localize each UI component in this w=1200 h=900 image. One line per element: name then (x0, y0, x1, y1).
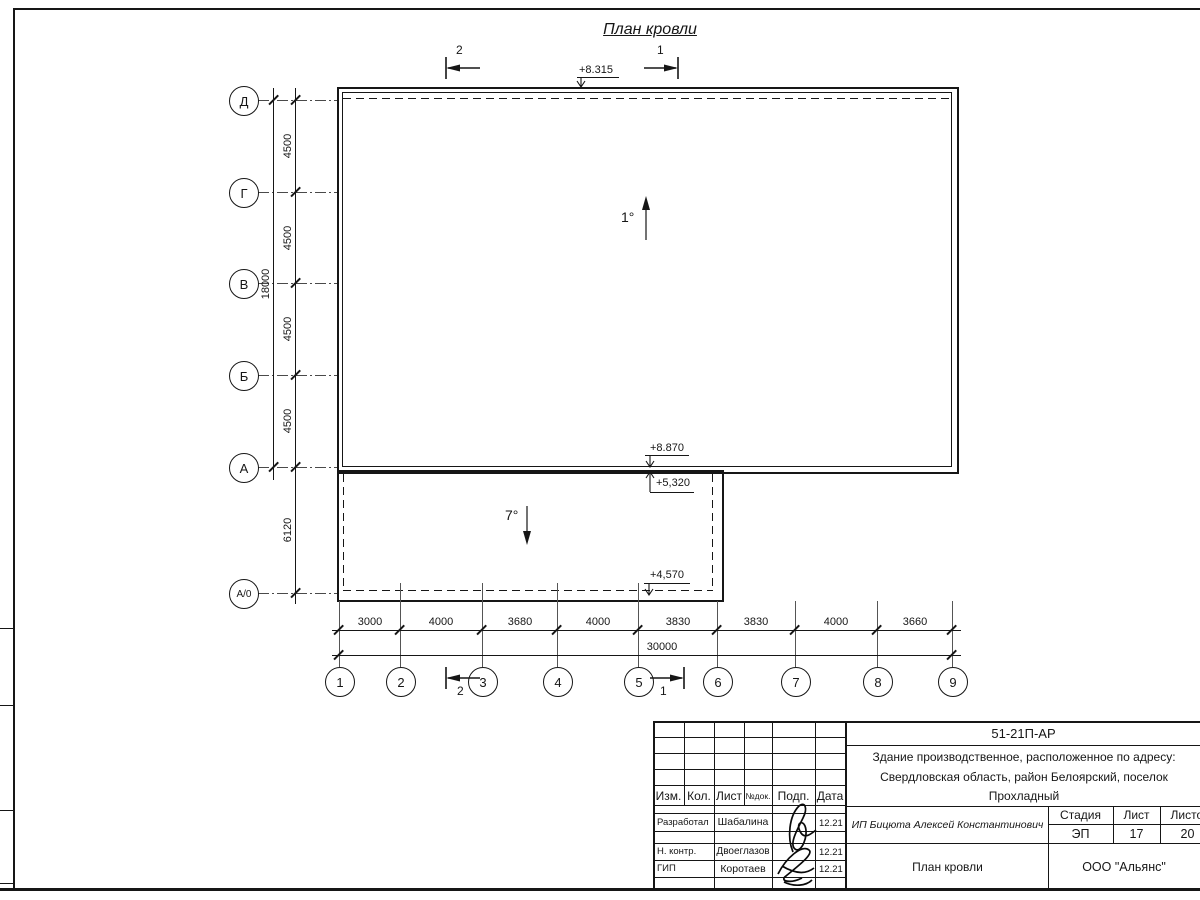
elevation-arrow-up-icon (645, 470, 655, 493)
slope-down-arrow-icon (521, 504, 533, 546)
frame-top (13, 8, 1200, 10)
axis-line-b (258, 375, 337, 376)
roof-main-eaves-dashed (343, 98, 949, 99)
titleblock-sheet-value: 17 (1113, 824, 1160, 843)
dim-line-cols-total (332, 655, 961, 656)
section-arrow-left-top (438, 55, 482, 81)
titleblock-sheets-label: Листов (1160, 806, 1200, 824)
axis-row-label: А (240, 461, 249, 476)
col-ext-line (339, 601, 340, 667)
dim-row-annex: 6120 (282, 518, 294, 542)
dim-row-span-3: 4500 (282, 317, 294, 341)
axis-row-3: В (229, 269, 259, 299)
titleblock-date-3: 12.21 (819, 862, 843, 876)
titleblock-header-ndok: №док. (744, 786, 772, 805)
dim-row-span-4: 4500 (282, 409, 294, 433)
axis-col-6: 6 (703, 667, 733, 697)
titleblock-line (653, 753, 845, 754)
col-ext-line (952, 601, 953, 667)
page-title: План кровли (603, 21, 697, 39)
dim-col-span-1: 3000 (358, 616, 382, 628)
dim-line-rows-total (273, 88, 274, 480)
axis-col-1: 1 (325, 667, 355, 697)
axis-col-label: 9 (949, 675, 956, 690)
roof-main-inner-line (342, 92, 952, 467)
frame-left (13, 8, 15, 890)
elevation-arrow-down-icon (645, 455, 655, 468)
dim-col-span-5: 3830 (666, 616, 690, 628)
dim-col-span-7: 4000 (824, 616, 848, 628)
axis-col-label: 6 (714, 675, 721, 690)
axis-row-label: Б (240, 369, 249, 384)
titleblock-doc-code: 51-21П-АР (847, 721, 1200, 745)
slope-annex-label: 7° (505, 507, 518, 523)
dim-col-span-8: 3660 (903, 616, 927, 628)
slope-main-label: 1° (621, 209, 634, 225)
axis-col-7: 7 (781, 667, 811, 697)
titleblock-date-2: 12.21 (819, 845, 843, 859)
axis-row-2: Г (229, 178, 259, 208)
titleblock-name-1: Шабалина (714, 813, 772, 831)
section-arrow-right-top (642, 55, 686, 81)
dim-line-cols (332, 630, 961, 631)
elevation-arrow-down-icon (644, 583, 654, 596)
titleblock-header-list: Лист (714, 786, 744, 805)
titleblock-header-izm: Изм. (653, 786, 684, 805)
axis-line-g (258, 192, 337, 193)
elevation-ridge-top: +8.315 (579, 64, 613, 76)
titleblock-line (653, 737, 845, 738)
elevation-annex-top: +5,320 (656, 477, 690, 489)
dim-col-span-3: 3680 (508, 616, 532, 628)
annex-dashed-left (343, 474, 344, 591)
elevation-underline (650, 492, 694, 493)
dim-col-span-6: 3830 (744, 616, 768, 628)
margin-divider (0, 810, 13, 811)
axis-row-6: А/0 (229, 579, 259, 609)
titleblock-header-data: Дата (815, 786, 845, 805)
dim-col-span-2: 4000 (429, 616, 453, 628)
axis-col-label: 7 (792, 675, 799, 690)
axis-col-label: 5 (635, 675, 642, 690)
titleblock-line (847, 745, 1200, 746)
col-ext-line (795, 601, 796, 667)
titleblock-object-line: Здание производственное, расположенное п… (852, 748, 1196, 768)
axis-row-label: В (240, 277, 249, 292)
axis-row-5: А (229, 453, 259, 483)
dim-row-span-1: 4500 (282, 134, 294, 158)
titleblock-date-1: 12.21 (819, 815, 843, 831)
elevation-annex-edge: +4,570 (650, 569, 684, 581)
axis-col-label: 4 (554, 675, 561, 690)
titleblock-sheet-name: План кровли (847, 843, 1048, 890)
section-label: 1 (657, 43, 664, 57)
titleblock-stage-value: ЭП (1048, 824, 1113, 843)
axis-row-label: Д (240, 94, 249, 109)
titleblock-sheets-value: 20 (1160, 824, 1200, 843)
titleblock-org: ООО "Альянс" (1048, 843, 1200, 890)
axis-col-label: 8 (874, 675, 881, 690)
dim-col-span-4: 4000 (586, 616, 610, 628)
drawing-sheet: План кровли Д Г В Б А А/0 4500 4500 4500… (0, 0, 1200, 900)
axis-col-4: 4 (543, 667, 573, 697)
slope-up-arrow-icon (640, 196, 652, 242)
titleblock-role-1: Разработал (657, 813, 709, 831)
titleblock-stage-label: Стадия (1048, 806, 1113, 824)
annex-dashed-bottom (343, 590, 713, 591)
axis-row-label: Г (240, 186, 247, 201)
axis-col-label: 2 (397, 675, 404, 690)
margin-divider (0, 883, 13, 884)
elevation-main-edge: +8.870 (650, 442, 684, 454)
dim-line-rows (295, 88, 296, 604)
section-arrow-right-bottom (648, 665, 692, 691)
axis-row-label: А/0 (236, 589, 251, 600)
titleblock-role-2: Н. контр. (657, 843, 696, 860)
titleblock-line (653, 769, 845, 770)
axis-row-1: Д (229, 86, 259, 116)
col-ext-line (877, 601, 878, 667)
titleblock-name-2: Двоеглазов (714, 843, 772, 860)
margin-divider (0, 628, 13, 629)
dim-row-total: 18000 (260, 269, 272, 300)
dim-row-span-2: 4500 (282, 226, 294, 250)
axis-row-4: Б (229, 361, 259, 391)
titleblock-name-3: Коротаев (714, 860, 772, 877)
titleblock-object: Здание производственное, расположенное п… (852, 748, 1196, 807)
section-label: 1 (660, 684, 667, 698)
section-label: 2 (456, 43, 463, 57)
titleblock-role-3: ГИП (657, 860, 676, 877)
section-label: 2 (457, 684, 464, 698)
dim-col-total: 30000 (647, 641, 678, 653)
annex-dashed-right (712, 474, 713, 591)
axis-col-2: 2 (386, 667, 416, 697)
elevation-arrow-down-icon (576, 77, 586, 88)
axis-line-a0 (258, 593, 337, 594)
axis-col-label: 1 (336, 675, 343, 690)
signature-2 (774, 838, 818, 888)
titleblock-object-line: Свердловская область, район Белоярский, … (852, 768, 1196, 788)
titleblock-object-line: Прохладный (852, 787, 1196, 807)
titleblock-sheet-label: Лист (1113, 806, 1160, 824)
axis-col-9: 9 (938, 667, 968, 697)
col-ext-line (717, 601, 718, 667)
axis-col-8: 8 (863, 667, 893, 697)
margin-divider (0, 705, 13, 706)
titleblock-client: ИП Бицюта Алексей Константинович (849, 806, 1046, 843)
titleblock-header-kol: Кол. (684, 786, 714, 805)
